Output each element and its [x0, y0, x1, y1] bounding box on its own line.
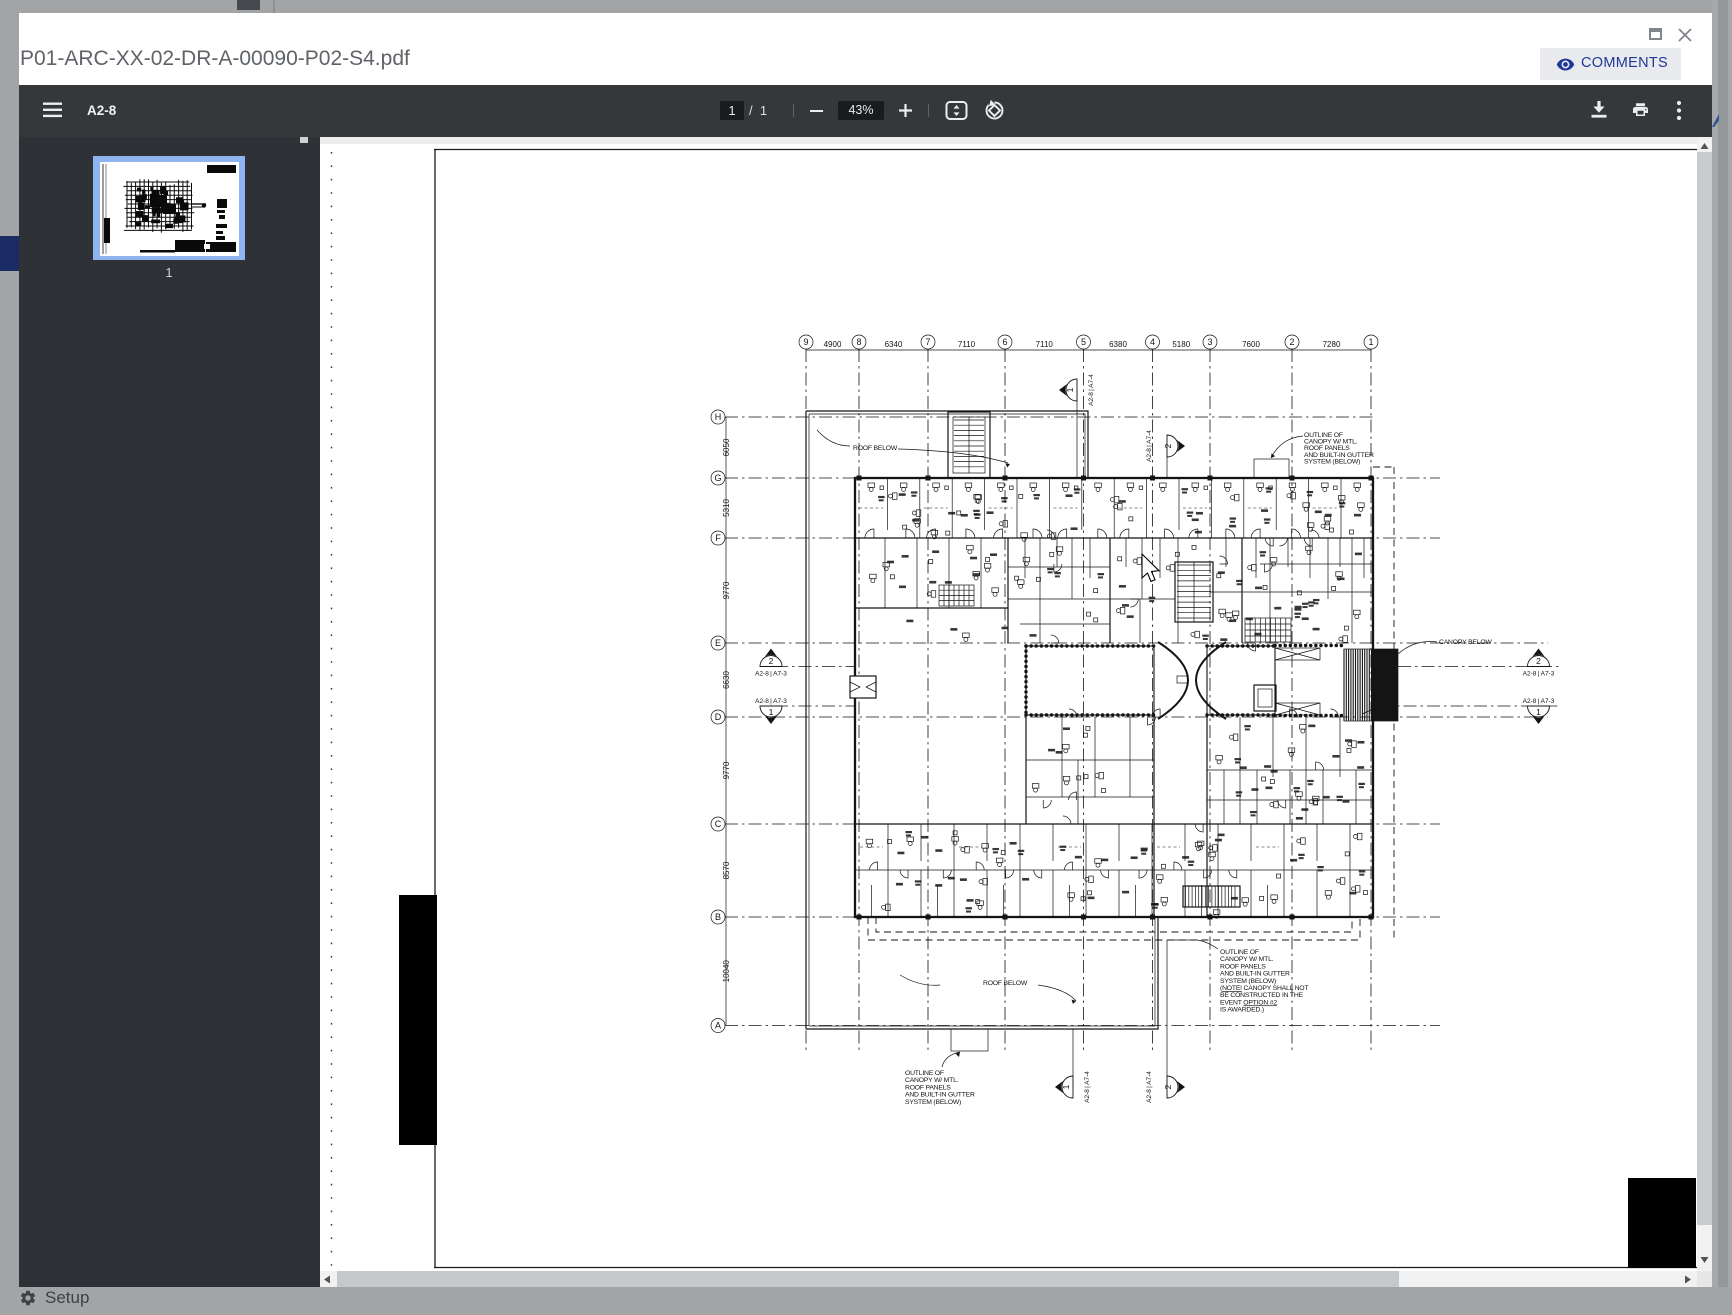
svg-text:AND BUILT-IN GUTTER: AND BUILT-IN GUTTER [905, 1092, 975, 1099]
svg-text:6: 6 [1002, 337, 1007, 347]
svg-text:IS AWARDED.): IS AWARDED.) [1220, 1007, 1264, 1014]
svg-text:D: D [715, 712, 722, 722]
svg-text:8: 8 [856, 337, 861, 347]
svg-text:4: 4 [1150, 337, 1155, 347]
svg-text:10040: 10040 [722, 960, 731, 983]
svg-text:2: 2 [1163, 443, 1173, 448]
svg-text:9770: 9770 [722, 581, 731, 599]
svg-text:5180: 5180 [1172, 340, 1190, 349]
svg-text:AND BUILT-IN GUTTER: AND BUILT-IN GUTTER [1220, 971, 1290, 978]
svg-text:SYSTEM (BELOW): SYSTEM (BELOW) [1304, 458, 1360, 465]
svg-text:H: H [715, 412, 722, 422]
svg-text:9: 9 [803, 337, 808, 347]
svg-text:ROOF BELOW: ROOF BELOW [983, 980, 1028, 987]
svg-text:CANOPY W/ MTL.: CANOPY W/ MTL. [1220, 956, 1274, 963]
svg-text:(NOTE! CANOPY SHALL NOT: (NOTE! CANOPY SHALL NOT [1220, 985, 1308, 992]
svg-text:A2-8 | A7-4: A2-8 | A7-4 [1146, 430, 1153, 462]
svg-text:E: E [715, 638, 721, 648]
svg-text:CANOPY W/ MTL.: CANOPY W/ MTL. [905, 1077, 959, 1084]
svg-text:7110: 7110 [958, 340, 976, 349]
svg-text:C: C [715, 819, 722, 829]
svg-text:8570: 8570 [722, 861, 731, 879]
svg-text:1: 1 [1061, 1084, 1071, 1089]
svg-text:ROOF PANELS: ROOF PANELS [1220, 963, 1266, 970]
svg-text:7: 7 [925, 337, 930, 347]
svg-text:A2-8 | A7-4: A2-8 | A7-4 [1146, 1071, 1153, 1103]
svg-text:6630: 6630 [722, 671, 731, 689]
svg-text:5310: 5310 [722, 499, 731, 517]
svg-text:A2-8 | A7-3: A2-8 | A7-3 [1523, 698, 1555, 705]
svg-text:EVENT OPTION #2: EVENT OPTION #2 [1220, 999, 1277, 1006]
svg-text:7280: 7280 [1323, 340, 1341, 349]
svg-text:1: 1 [769, 707, 774, 717]
svg-text:A2-8 | A7-3: A2-8 | A7-3 [755, 698, 787, 705]
svg-text:9770: 9770 [722, 761, 731, 779]
svg-text:2: 2 [1289, 337, 1294, 347]
svg-text:A: A [715, 1021, 721, 1031]
svg-text:OUTLINE OF: OUTLINE OF [905, 1070, 944, 1077]
svg-text:F: F [715, 533, 721, 543]
svg-text:5: 5 [1081, 337, 1086, 347]
svg-text:2: 2 [769, 656, 774, 666]
svg-text:SYSTEM (BELOW): SYSTEM (BELOW) [1220, 978, 1276, 985]
svg-text:SYSTEM (BELOW): SYSTEM (BELOW) [905, 1099, 961, 1106]
svg-text:7600: 7600 [1242, 340, 1260, 349]
svg-text:CANOPY BELOW: CANOPY BELOW [1439, 639, 1492, 646]
svg-text:A2-8 | A7-4: A2-8 | A7-4 [1084, 1071, 1091, 1103]
svg-text:A2-8 | A7-4: A2-8 | A7-4 [1088, 374, 1095, 406]
svg-text:6340: 6340 [885, 340, 903, 349]
svg-text:1: 1 [1065, 387, 1075, 392]
svg-text:3: 3 [1207, 337, 1212, 347]
svg-text:G: G [714, 473, 721, 483]
svg-text:2: 2 [1163, 1084, 1173, 1089]
svg-text:1: 1 [1368, 337, 1373, 347]
svg-text:A2-8 | A7-3: A2-8 | A7-3 [1523, 671, 1555, 678]
svg-text:1: 1 [1536, 707, 1541, 717]
svg-text:ROOF PANELS: ROOF PANELS [905, 1084, 951, 1091]
svg-text:BE CONSTRUCTED IN THE: BE CONSTRUCTED IN THE [1220, 992, 1304, 999]
svg-text:2: 2 [1536, 656, 1541, 666]
svg-text:6050: 6050 [722, 438, 731, 456]
svg-text:4900: 4900 [824, 340, 842, 349]
svg-text:6380: 6380 [1109, 340, 1127, 349]
svg-text:7110: 7110 [1036, 340, 1054, 349]
svg-text:B: B [715, 912, 721, 922]
svg-text:A2-8 | A7-3: A2-8 | A7-3 [755, 671, 787, 678]
svg-text:ROOF BELOW: ROOF BELOW [853, 445, 898, 452]
svg-text:OUTLINE OF: OUTLINE OF [1220, 949, 1259, 956]
